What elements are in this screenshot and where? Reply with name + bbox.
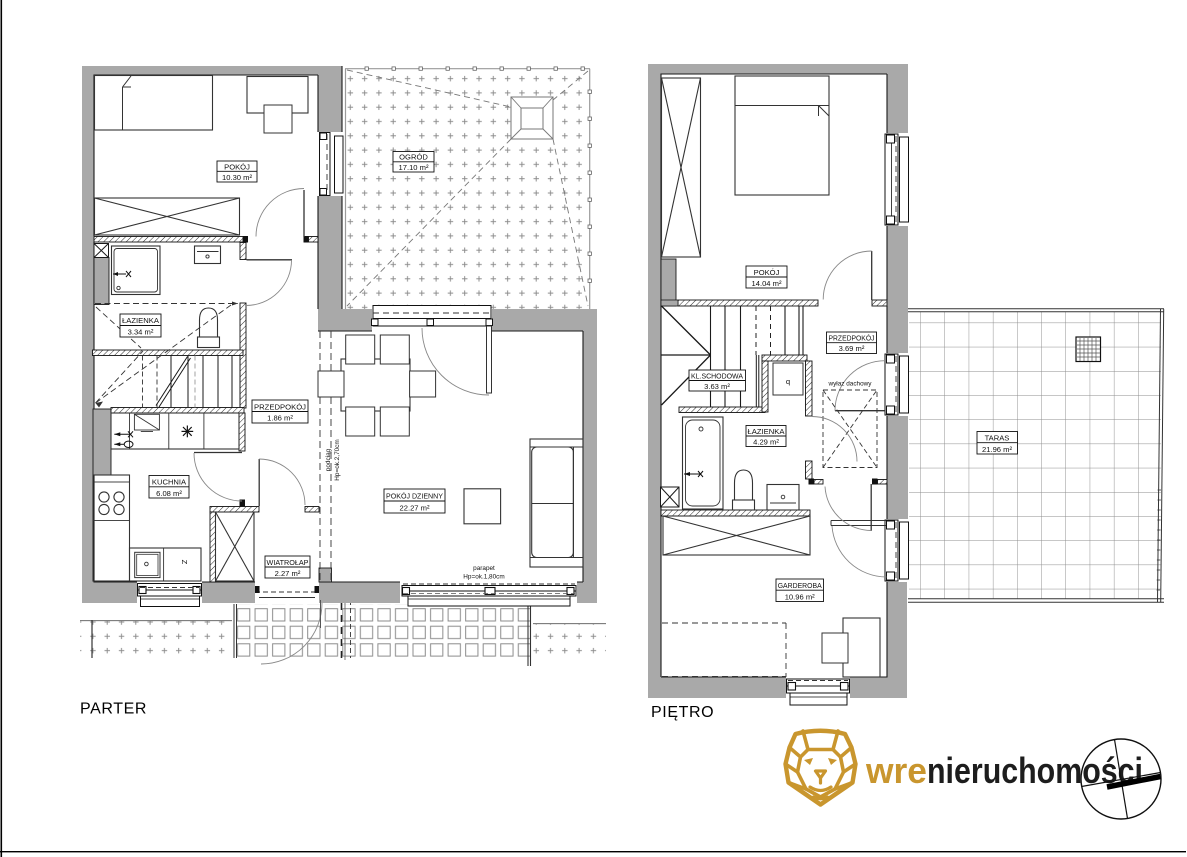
svg-text:PARTER: PARTER	[80, 701, 147, 718]
svg-text:4.29 m²: 4.29 m²	[753, 437, 779, 446]
svg-text:POKÓJ: POKÓJ	[754, 268, 780, 277]
svg-text:q: q	[786, 377, 790, 386]
svg-text:OGRÓD: OGRÓD	[399, 153, 428, 162]
svg-text:POKÓJ: POKÓJ	[224, 162, 250, 171]
svg-text:POKÓJ DZIENNY: POKÓJ DZIENNY	[386, 492, 443, 501]
svg-text:3.34 m²: 3.34 m²	[128, 328, 154, 337]
svg-text:WIATROŁAP: WIATROŁAP	[267, 558, 309, 567]
svg-text:KUCHNIA: KUCHNIA	[152, 478, 187, 487]
svg-text:KL.SCHODOWA: KL.SCHODOWA	[691, 371, 744, 380]
svg-text:Z: Z	[180, 560, 189, 565]
svg-text:17.10 m²: 17.10 m²	[399, 163, 429, 172]
svg-text:3.63 m²: 3.63 m²	[704, 382, 730, 391]
svg-text:2.27 m²: 2.27 m²	[275, 569, 301, 578]
svg-text:ŁAZIENKA: ŁAZIENKA	[122, 316, 160, 325]
svg-text:6.08 m²: 6.08 m²	[156, 489, 182, 498]
svg-text:ŁAZIENKA: ŁAZIENKA	[748, 427, 786, 436]
svg-text:PIĘTRO: PIĘTRO	[651, 704, 714, 721]
svg-text:Hp=ok.1,80cm: Hp=ok.1,80cm	[463, 574, 504, 581]
svg-text:22.27 m²: 22.27 m²	[400, 503, 430, 512]
svg-text:1.86 m²: 1.86 m²	[267, 414, 293, 423]
svg-text:10.30 m²: 10.30 m²	[222, 173, 252, 182]
svg-text:PRZEDPOKÓJ: PRZEDPOKÓJ	[254, 402, 306, 411]
svg-text:21.96 m²: 21.96 m²	[982, 445, 1012, 454]
svg-text:GARDEROBA: GARDEROBA	[778, 581, 823, 590]
svg-text:14.04 m²: 14.04 m²	[752, 279, 782, 288]
svg-text:Hp=ok.2,70cm: Hp=ok.2,70cm	[334, 439, 341, 480]
svg-text:wre: wre	[865, 750, 927, 791]
svg-text:TARAS: TARAS	[985, 434, 1010, 443]
svg-text:parapet: parapet	[473, 565, 495, 572]
svg-text:3.69 m²: 3.69 m²	[839, 344, 865, 353]
svg-text:PRZEDPOKÓJ: PRZEDPOKÓJ	[829, 334, 875, 343]
svg-text:podciąg: podciąg	[325, 448, 332, 471]
svg-text:wyłaz dachowy: wyłaz dachowy	[828, 380, 873, 387]
svg-text:10.96 m²: 10.96 m²	[785, 592, 815, 601]
